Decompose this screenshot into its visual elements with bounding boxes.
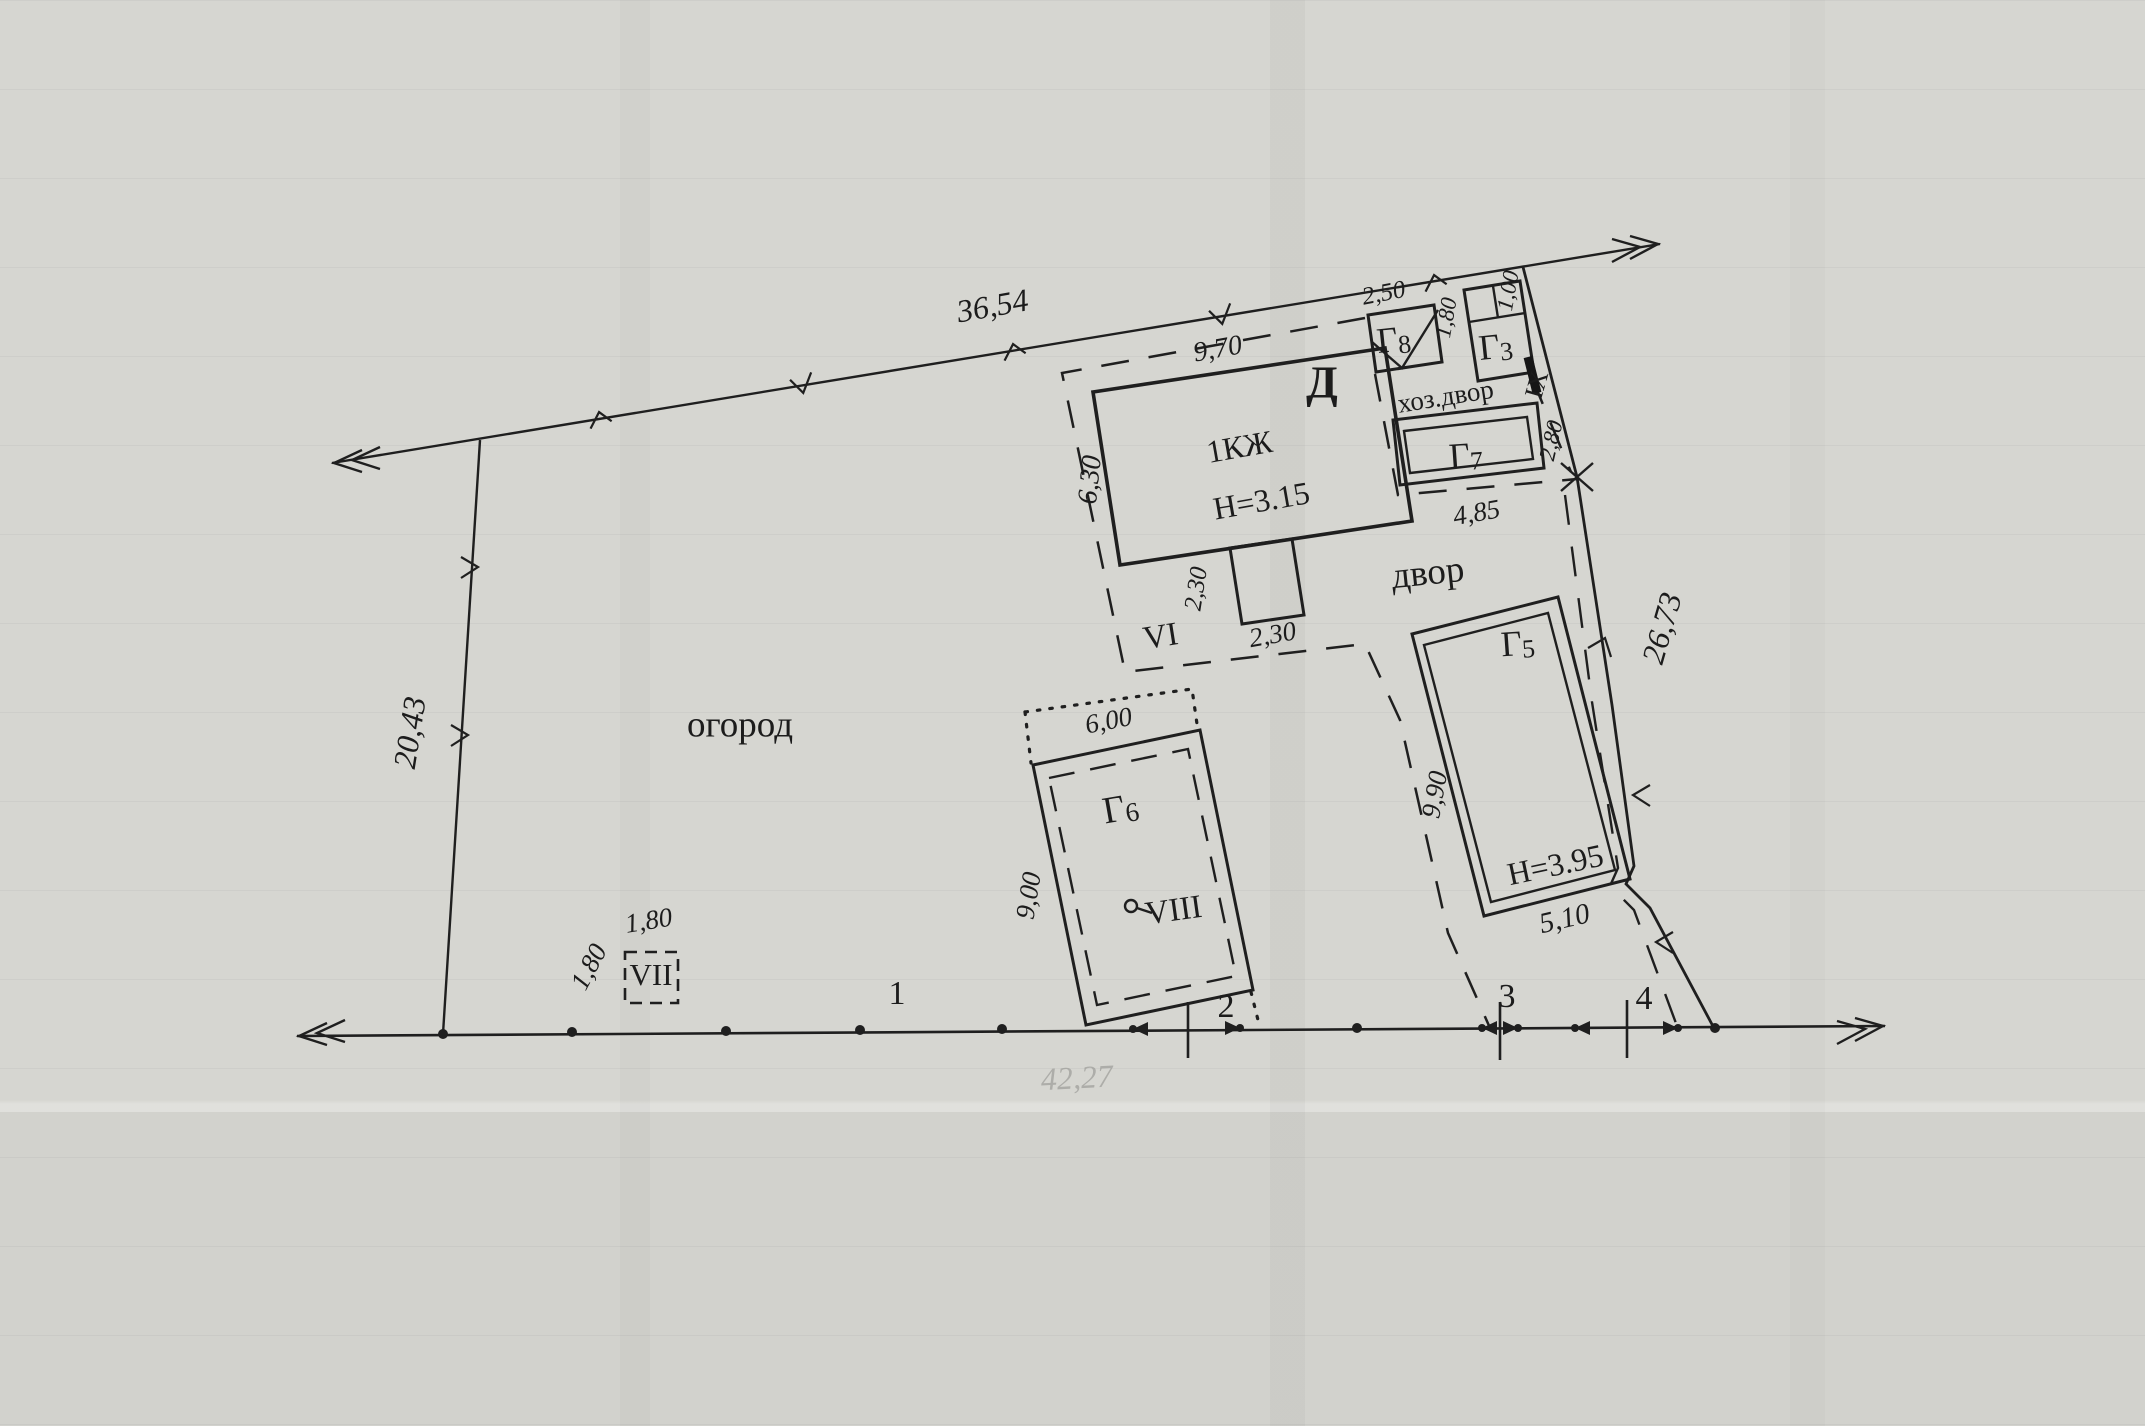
- point-label-1: 1: [889, 975, 906, 1012]
- dim-42-27: 42,27: [1040, 1057, 1116, 1097]
- building-label-g7: Г7: [1447, 434, 1484, 477]
- area-label-hozdvor: хоз.двор: [1395, 374, 1495, 419]
- porch-outline: [1230, 539, 1304, 624]
- dim-2-30-v: 2,30: [1180, 565, 1214, 613]
- building-note-1kzh: 1КЖ: [1204, 423, 1276, 470]
- dim-20-43: 20,43: [386, 694, 433, 771]
- dotted-lines: [1025, 689, 1259, 1024]
- dim-36-54: 36,54: [953, 281, 1031, 329]
- scanned-site-plan-page: 36,5420,4326,7342,279,706,302,501,801,00…: [0, 0, 2145, 1426]
- dim-2-50: 2,50: [1360, 276, 1409, 311]
- territory-dashed-lines: [1062, 318, 1577, 1028]
- site-plan-drawing: 36,5420,4326,7342,279,706,302,501,801,00…: [0, 0, 2145, 1426]
- plan-labels-layer: 36,5420,4326,7342,279,706,302,501,801,00…: [386, 268, 1689, 1097]
- dim-9-70: 9,70: [1191, 329, 1245, 368]
- dim-1-80-a: 1,80: [1430, 295, 1462, 339]
- area-label-dvor: двор: [1389, 549, 1466, 597]
- dim-1-80-b: 1,80: [623, 902, 675, 939]
- right-inner-dashed-line: [1565, 495, 1677, 1026]
- dim-1-00: 1,00: [1492, 268, 1524, 312]
- point-label-4: 4: [1636, 980, 1653, 1017]
- dim-6-30: 6,30: [1072, 454, 1108, 506]
- building-label-g5: Г5: [1499, 622, 1536, 665]
- area-label-ogorod: огород: [687, 704, 793, 745]
- building-note-h395: Н=3.95: [1504, 837, 1607, 892]
- building-label-g6: Г6: [1099, 785, 1141, 833]
- dim-6-00: 6,00: [1082, 701, 1135, 740]
- dim-1-80-c: 1,80: [564, 938, 613, 994]
- dim-4-85: 4,85: [1451, 493, 1503, 531]
- dim-26-73: 26,73: [1634, 588, 1688, 667]
- dim-5-10: 5,10: [1536, 897, 1593, 940]
- roman-vi: VI: [1141, 616, 1181, 657]
- building-note-h315: Н=3.15: [1210, 474, 1312, 526]
- building-label-g3: Г3: [1477, 325, 1515, 369]
- building-label-g8: Г8: [1375, 318, 1413, 362]
- dim-9-90: 9,90: [1415, 768, 1453, 820]
- building-label-d: Д: [1306, 357, 1338, 408]
- roman-vii: VII: [629, 957, 672, 992]
- point-label-2: 2: [1218, 988, 1235, 1025]
- dim-9-00: 9,00: [1010, 869, 1047, 921]
- left-boundary-line: [443, 440, 480, 1034]
- point-label-3: 3: [1499, 978, 1516, 1015]
- building-g6-outline: [1033, 730, 1253, 1025]
- roman-viii: VIII: [1143, 889, 1204, 933]
